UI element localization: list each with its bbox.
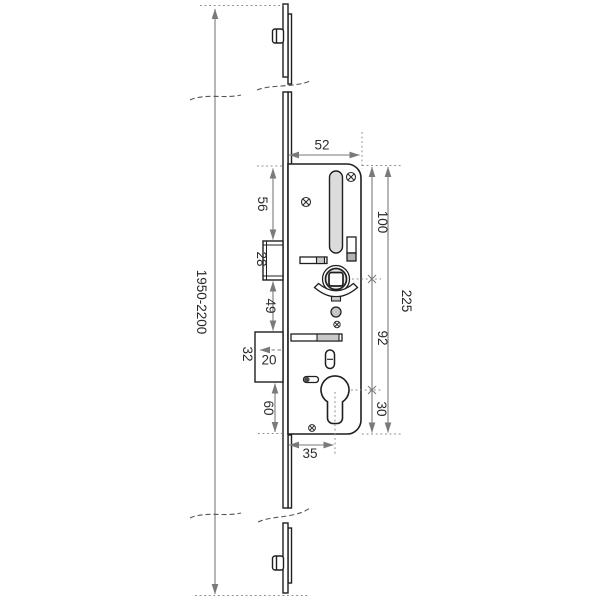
lock-technical-drawing: 1950-2200 52 56 28 49 32 20 60 35 100 92…: [0, 0, 600, 600]
label-35: 35: [302, 446, 317, 461]
link-slot: [326, 350, 335, 369]
label-52: 52: [314, 138, 329, 153]
locking-tab: [347, 237, 356, 261]
label-20: 20: [261, 353, 276, 368]
roller-pin-top: [273, 29, 284, 43]
label-92: 92: [375, 330, 390, 345]
label-32: 32: [240, 346, 255, 361]
label-49: 49: [263, 298, 278, 313]
vertical-guide-slot: [330, 171, 343, 253]
label-28: 28: [254, 251, 269, 266]
roller-pin-bottom: [273, 556, 284, 570]
label-60: 60: [261, 400, 276, 415]
drawing-canvas: 1950-2200 52 56 28 49 32 20 60 35 100 92…: [0, 0, 600, 600]
label-faceplate-length: 1950-2200: [194, 270, 209, 335]
label-100: 100: [375, 211, 390, 234]
pivot-pin: [331, 307, 341, 317]
latch-slide-bar: [300, 257, 327, 264]
break-mark-lower-right: [258, 508, 310, 522]
square-spindle-hole: [329, 273, 343, 287]
label-30: 30: [374, 401, 389, 416]
break-mark-upper-right: [257, 81, 310, 90]
pin-in-slot: [304, 377, 319, 383]
label-56: 56: [255, 196, 270, 211]
deadbolt-slide-bar: [291, 334, 342, 341]
label-225: 225: [399, 290, 414, 313]
